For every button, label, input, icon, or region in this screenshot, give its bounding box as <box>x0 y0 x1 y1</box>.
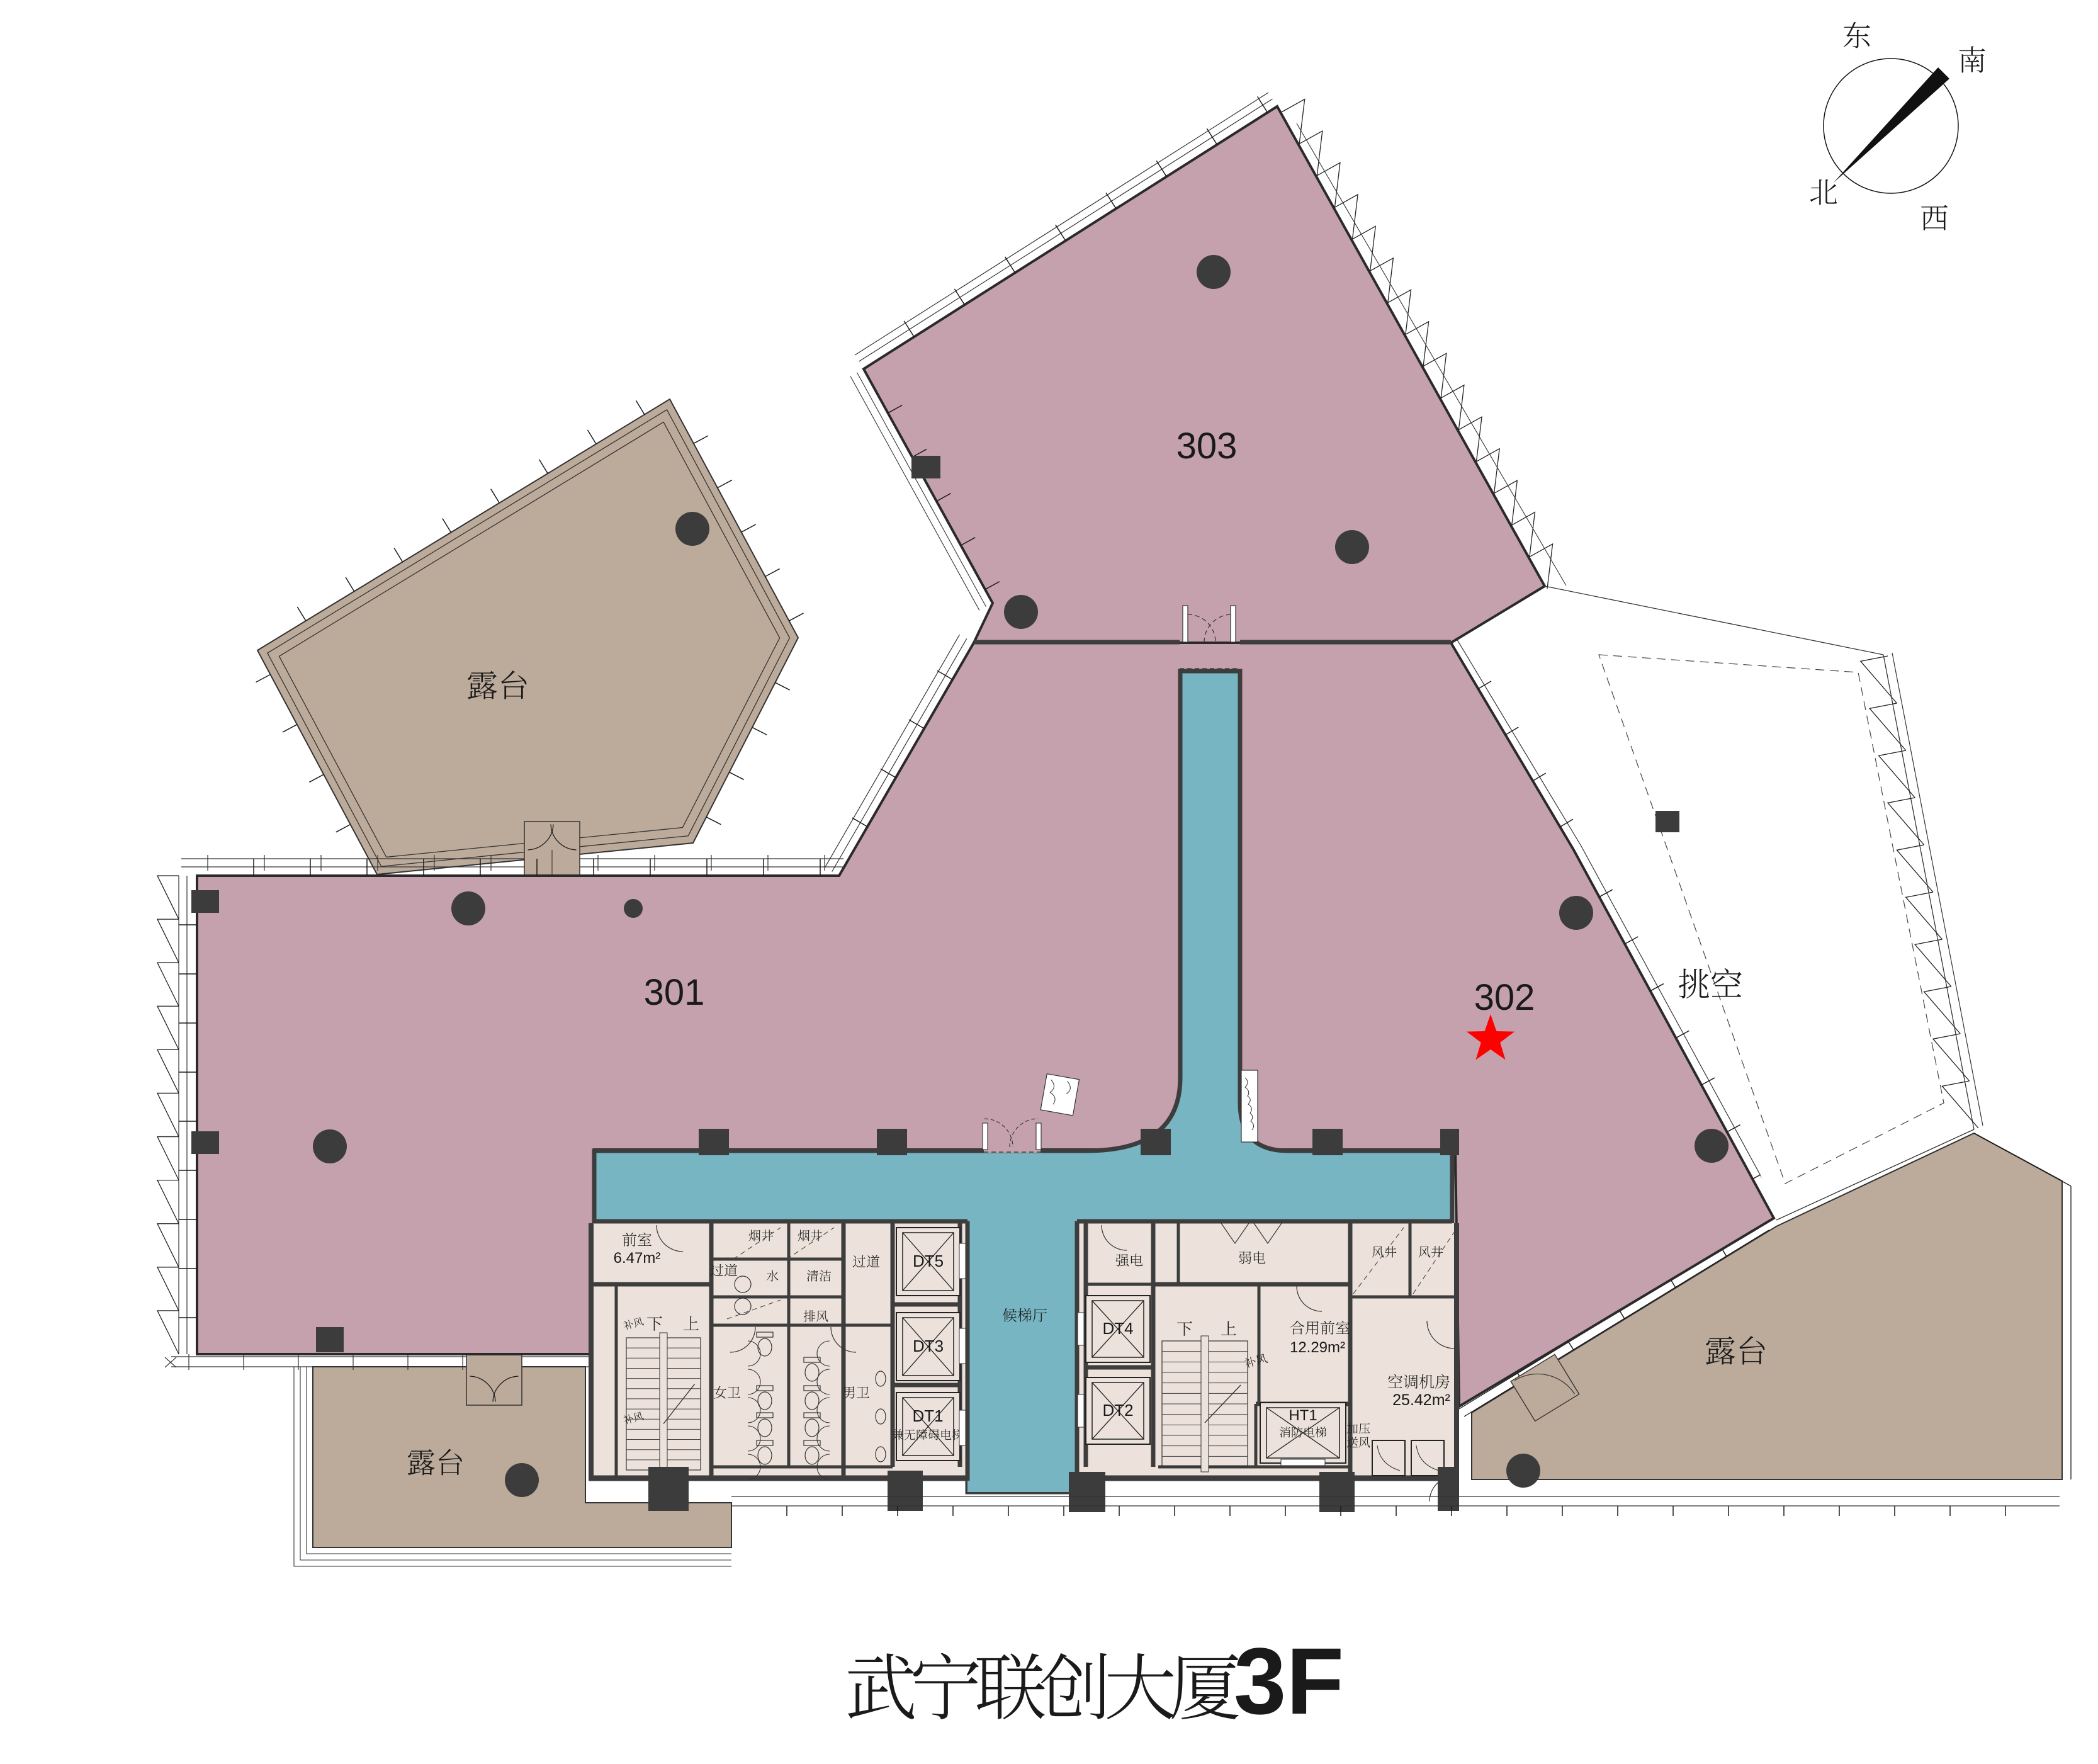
svg-text:DT3: DT3 <box>913 1337 944 1355</box>
svg-text:DT5: DT5 <box>913 1252 944 1270</box>
svg-text:HT1: HT1 <box>1289 1407 1317 1424</box>
svg-text:DT2: DT2 <box>1102 1401 1133 1420</box>
svg-text:303: 303 <box>1176 426 1238 466</box>
svg-text:DT1: DT1 <box>912 1406 943 1425</box>
svg-text:25.42m²: 25.42m² <box>1392 1391 1450 1409</box>
svg-text:DT4: DT4 <box>1102 1319 1133 1338</box>
svg-text:6.47m²: 6.47m² <box>614 1250 661 1267</box>
svg-text:12.29m²: 12.29m² <box>1290 1339 1345 1356</box>
svg-text:301: 301 <box>644 972 705 1013</box>
svg-text:3F: 3F <box>1234 1628 1344 1734</box>
svg-text:302: 302 <box>1474 977 1535 1018</box>
